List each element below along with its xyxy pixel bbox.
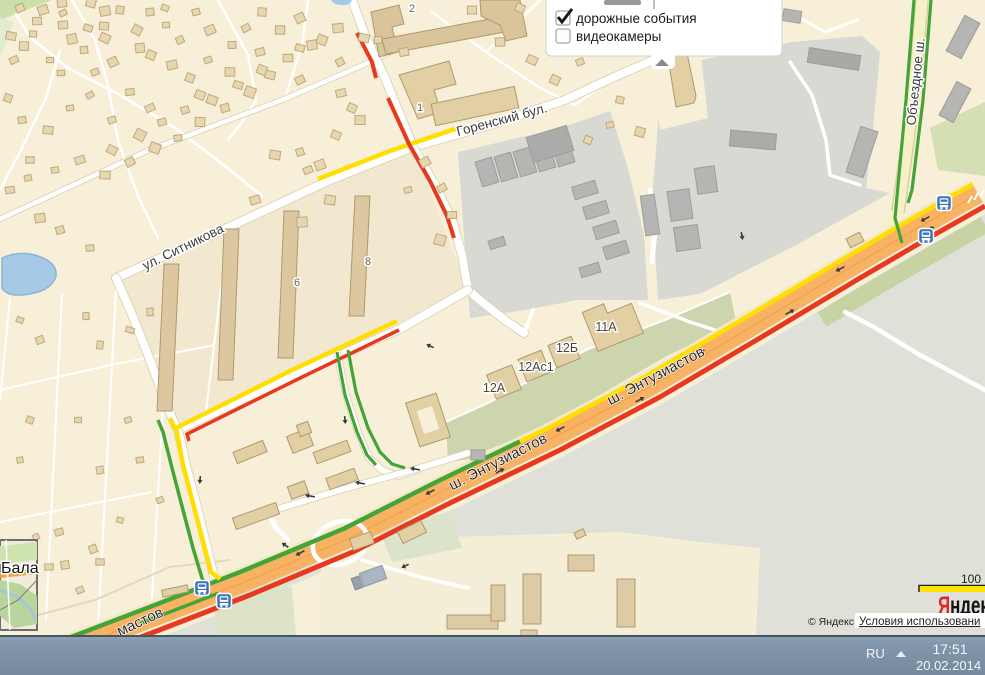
- svg-text:видеокамеры: видеокамеры: [576, 29, 661, 44]
- svg-text:Условия использовани: Условия использовани: [859, 616, 980, 628]
- svg-text:12А: 12А: [483, 381, 506, 395]
- svg-text:1: 1: [417, 102, 423, 114]
- svg-text:8: 8: [365, 256, 371, 268]
- svg-text:12Ас1: 12Ас1: [518, 360, 553, 374]
- svg-text:дорожные события: дорожные события: [576, 11, 697, 26]
- svg-text:12Б: 12Б: [556, 341, 578, 355]
- svg-text:6: 6: [294, 277, 300, 289]
- svg-text:Бала: Бала: [1, 560, 39, 577]
- svg-text:© Яндекс: © Яндекс: [808, 616, 854, 628]
- svg-text:100: 100: [961, 572, 981, 586]
- svg-text:11А: 11А: [595, 320, 617, 334]
- svg-text:2: 2: [409, 3, 415, 15]
